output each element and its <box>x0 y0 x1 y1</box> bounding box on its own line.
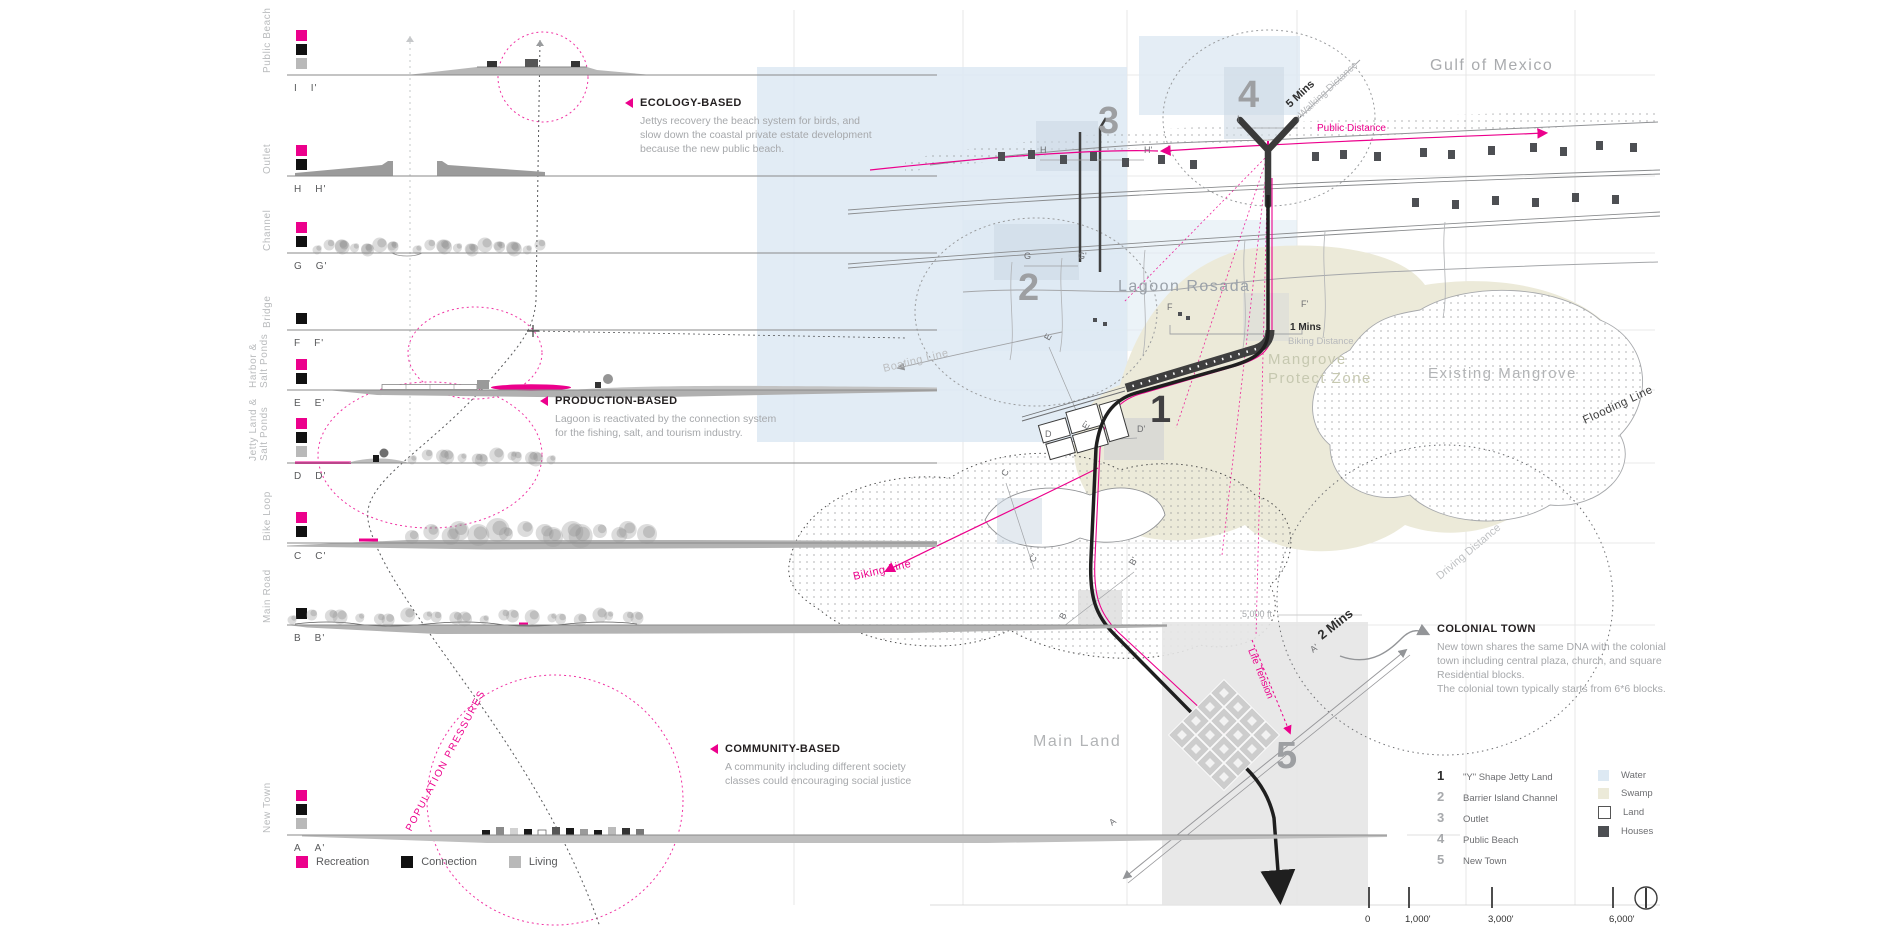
plan-legend-row: 4Public Beach <box>1437 831 1558 846</box>
plan-legend-number: 1 <box>1437 768 1463 783</box>
annotation-community: COMMUNITY-BASED A community including di… <box>710 742 990 788</box>
plan-number-4: 4 <box>1238 74 1259 116</box>
land-swatch-icon <box>1598 806 1611 819</box>
connection-swatch-icon <box>401 856 413 868</box>
lagoon-rosada-label: Lagoon Rosada <box>1118 278 1250 296</box>
section-letters: CC' <box>294 551 339 562</box>
annotation-body: A community including different society … <box>725 760 990 788</box>
plan-legend-number: 4 <box>1437 831 1463 846</box>
svg-text:F': F' <box>1301 299 1308 309</box>
annotation-title: COLONIAL TOWN <box>1437 622 1737 636</box>
area-legend-row: Water <box>1598 770 1653 781</box>
svg-text:G': G' <box>1078 251 1087 261</box>
section-letters: II' <box>294 83 330 94</box>
svg-text:1,000': 1,000' <box>1405 914 1431 925</box>
swamp-swatch-icon <box>1598 788 1609 799</box>
annotation-production: PRODUCTION-BASED Lagoon is reactivated b… <box>540 394 870 440</box>
svg-text:F: F <box>1167 302 1173 312</box>
masterplan-canvas: II'HH'GG'FF'EE'DD'CC'BB'AA' 1 2 3 4 5 5 … <box>0 0 1900 927</box>
living-swatch-icon <box>509 856 521 868</box>
mangrove-zone-label: Mangrove Protect Zone <box>1268 350 1372 388</box>
annotation-ecology: ECOLOGY-BASED Jettys recovery the beach … <box>625 96 955 156</box>
plan-legend-number: 3 <box>1437 810 1463 825</box>
gulf-of-mexico-label: Gulf of Mexico <box>1430 57 1553 75</box>
plan-area-legend: WaterSwampLandHouses <box>1598 770 1653 844</box>
plan-legend-row: 2Barrier Island Channel <box>1437 789 1558 804</box>
annotation-arrow-icon <box>625 98 633 108</box>
svg-text:3,000': 3,000' <box>1488 914 1514 925</box>
svg-text:D: D <box>1045 429 1052 439</box>
svg-text:H: H <box>1040 145 1047 155</box>
plan-number-legend: 1"Y" Shape Jetty Land2Barrier Island Cha… <box>1437 768 1558 873</box>
scale-bar: 01,000'3,000'6,000' <box>1365 887 1635 925</box>
plan-legend-number: 2 <box>1437 789 1463 804</box>
water-swatch-icon <box>1598 770 1609 781</box>
public-distance-label: Public Distance <box>1317 123 1386 134</box>
plan-legend-label: Outlet <box>1463 814 1488 825</box>
annotation-arrow-icon <box>710 744 718 754</box>
existing-mangrove-label: Existing Mangrove <box>1428 365 1577 382</box>
section-letters: DD' <box>294 471 339 482</box>
section-letters: HH' <box>294 184 339 195</box>
plan-legend-row: 1"Y" Shape Jetty Land <box>1437 768 1558 783</box>
annotation-arrow-icon <box>540 396 548 406</box>
annotation-title: COMMUNITY-BASED <box>725 742 840 756</box>
program-legend-label: Living <box>529 856 558 868</box>
section-name-C: Bike Loop <box>262 451 273 541</box>
plan-legend-label: New Town <box>1463 856 1507 867</box>
plan-legend-label: Barrier Island Channel <box>1463 793 1558 804</box>
plan-number-3: 3 <box>1098 100 1119 142</box>
section-name-D: Jetty Land & Salt Ponds <box>248 371 270 461</box>
houses-swatch-icon <box>1598 826 1609 837</box>
plan-legend-number: 5 <box>1437 852 1463 867</box>
program-legend: RecreationConnectionLiving <box>296 856 558 868</box>
program-legend-label: Connection <box>421 856 477 868</box>
plan-number-2: 2 <box>1018 267 1039 309</box>
plan-number-1: 1 <box>1150 389 1171 431</box>
annotation-body: Jettys recovery the beach system for bir… <box>640 114 955 156</box>
section-name-I: Public Beach <box>262 0 273 73</box>
plan-legend-row: 3Outlet <box>1437 810 1558 825</box>
area-legend-label: Swamp <box>1621 788 1653 799</box>
area-legend-row: Land <box>1598 806 1653 819</box>
program-legend-label: Recreation <box>316 856 369 868</box>
area-legend-label: Houses <box>1621 826 1653 837</box>
section-letters: AA' <box>294 843 338 854</box>
svg-text:D': D' <box>1137 424 1145 434</box>
svg-text:0: 0 <box>1365 914 1370 925</box>
program-legend-item: Recreation <box>296 856 369 868</box>
section-letters: GG' <box>294 261 340 272</box>
section-drawing-G <box>287 205 937 275</box>
section-drawing-I <box>287 27 937 97</box>
plan-legend-label: Public Beach <box>1463 835 1518 846</box>
area-legend-label: Land <box>1623 807 1644 818</box>
main-land-label: Main Land <box>1033 733 1121 751</box>
svg-text:G: G <box>1024 251 1031 261</box>
section-drawing-B <box>287 577 1187 647</box>
program-legend-item: Connection <box>401 856 477 868</box>
area-legend-row: Swamp <box>1598 788 1653 799</box>
section-letters: BB' <box>294 633 338 644</box>
annotation-body: New town shares the same DNA with the co… <box>1437 640 1737 696</box>
section-name-B: Main Road <box>262 533 273 623</box>
biking-time-label: 1 Mins <box>1290 322 1322 333</box>
annotation-colonial: COLONIAL TOWN New town shares the same D… <box>1437 622 1737 696</box>
dist-5000-label: 5,000 ft <box>1242 609 1273 619</box>
section-drawing-A <box>287 787 1407 857</box>
program-legend-item: Living <box>509 856 558 868</box>
north-arrow-icon <box>1635 887 1657 909</box>
svg-text:6,000': 6,000' <box>1609 914 1635 925</box>
recreation-swatch-icon <box>296 856 308 868</box>
biking-distance-label: Biking Distance <box>1288 336 1353 347</box>
svg-text:H': H' <box>1144 145 1152 155</box>
annotation-title: PRODUCTION-BASED <box>555 394 678 408</box>
plan-legend-row: 5New Town <box>1437 852 1558 867</box>
section-drawing-C <box>287 495 937 565</box>
area-legend-label: Water <box>1621 770 1646 781</box>
plan-legend-label: "Y" Shape Jetty Land <box>1463 772 1553 783</box>
annotation-title: ECOLOGY-BASED <box>640 96 742 110</box>
area-legend-row: Houses <box>1598 826 1653 837</box>
section-name-A: New Town <box>262 743 273 833</box>
annotation-body: Lagoon is reactivated by the connection … <box>555 412 870 440</box>
section-letters: EE' <box>294 398 338 409</box>
plan-number-5: 5 <box>1276 735 1297 777</box>
